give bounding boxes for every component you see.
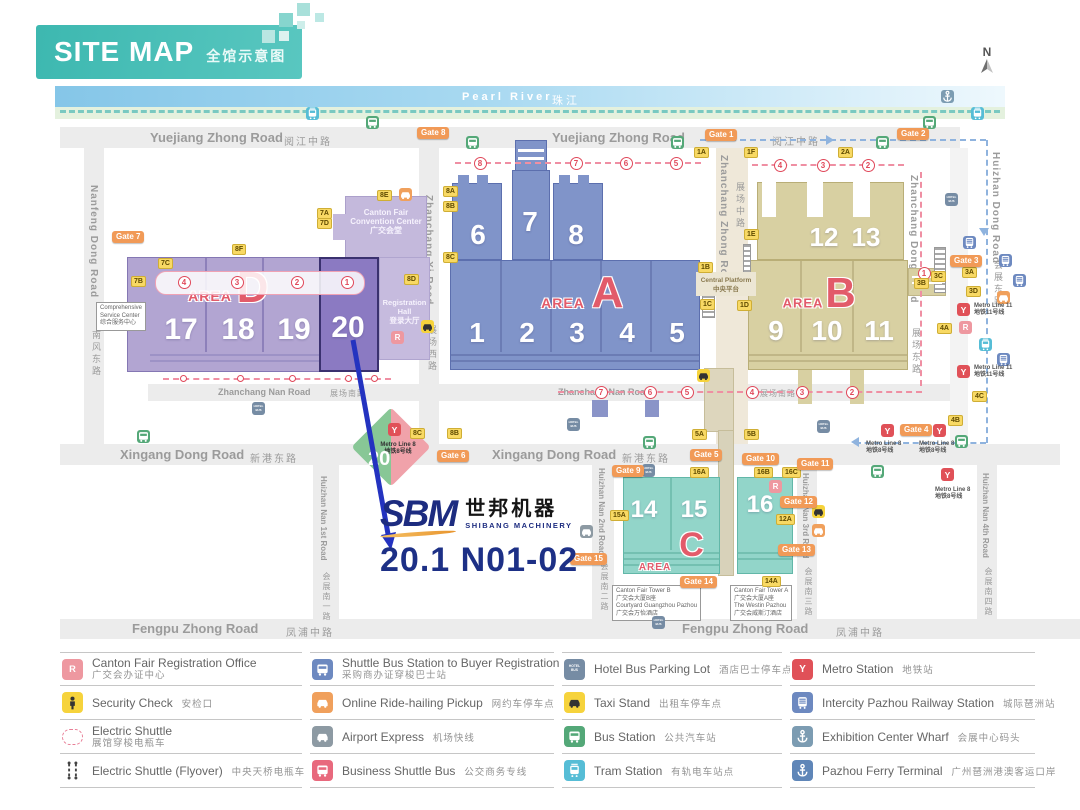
building-block [518,149,544,152]
gate-label: Gate 8 [417,127,449,139]
callout-comprehensive-service-center: ComprehensiveService Center综合服务中心 [96,302,146,331]
area-word: AREA [541,296,585,310]
building-block [559,175,570,184]
area-word: AREA [783,297,824,310]
facility-marker: 8B [447,428,462,439]
legend-label: Business Shuttle Bus 公交商务专线 [342,762,527,780]
area-letter: A [592,271,625,315]
building-block [762,181,776,217]
taxi-icon [564,692,585,713]
metro-icon: Y [792,659,813,680]
building-block [738,558,792,560]
ride-icon [812,524,825,537]
shuttle-stop: 6 [620,157,633,170]
taxi-icon [697,369,710,382]
flyover-icon [62,760,83,781]
metro-line-label: Metro Line 8地铁8号线 [935,487,970,500]
metro-line-label: Metro Line 11地铁11号线 [974,365,1012,378]
legend-label: Metro Station 地铁站 [822,660,934,678]
hall-number: 12 [810,224,839,250]
shuttle-stop: 4 [774,159,787,172]
building-block [645,400,659,417]
metro-icon: Y [957,365,970,378]
gate-label: Gate 3 [950,255,982,267]
hall-number: 5 [669,319,685,347]
legend-label: Exhibition Center Wharf 会展中心码头 [822,728,1021,746]
shuttle-stop: 1 [341,276,354,289]
reg-icon: R [62,659,83,680]
hotel-icon: HOTELBUS [567,418,580,431]
facility-marker: 1E [744,229,759,240]
road-label: 南风东路 [90,330,103,378]
hotel-icon: HOTELBUS [652,616,665,629]
facility-marker: 4B [948,415,963,426]
building-block [749,354,907,356]
building-block [451,360,699,362]
facility-marker: 8D [404,274,419,285]
building-block [578,175,589,184]
hall-number: 14 [631,498,658,522]
hotel-icon: HOTELBUS [252,402,265,415]
building-block [592,400,608,417]
legend-item-tram: Tram Station 有轨电车站点 [562,754,782,788]
legend-item-taxi: Taxi Stand 出租车停车点 [562,686,782,720]
gate-label: Gate 9 [612,465,644,477]
road-label: 新港东路 [250,450,298,465]
metro-line-label: Metro Line 11地铁11号线 [974,303,1012,316]
shuttle-stop: 2 [846,386,859,399]
bizbus-icon [312,760,333,781]
hall-number: 7 [522,208,538,236]
facility-marker: 12A [776,514,795,525]
building-label-central-platform: Central Platform中央平台 [696,276,756,294]
road-label: Fengpu Zhong Road [682,621,808,636]
intercity-icon [792,692,813,713]
bus-icon [366,116,379,129]
building-block [853,181,870,217]
bus-icon [876,136,889,149]
metro-line-label: Metro Line 8地铁8号线 [919,441,954,454]
legend-label: Online Ride-hailing Pickup 网约车停车点 [342,694,555,712]
facility-marker: 3D [966,286,981,297]
tram-icon [306,107,319,120]
hotel-icon: HOTELBUS [945,193,958,206]
building-block [518,157,544,160]
building-block [458,175,469,184]
legend-item-flyover: Electric Shuttle (Flyover) 中央天桥电瓶车 [60,754,302,788]
legend-item-hotel: HOTELBUSHotel Bus Parking Lot 酒店巴士停车点 [562,652,782,686]
facility-marker: 8A [443,186,458,197]
hotel-icon: HOTELBUS [564,659,585,680]
exhibitor-callout: SBM 世邦机器 SHIBANG MACHINERY 20.1 N01-02 [380,498,578,580]
banner-decoration-square [279,31,289,41]
legend-item-airport: Airport Express 机场快线 [310,720,554,754]
legend-item-ferry: Pazhou Ferry Terminal 广州琶洲港澳客运口岸 [790,754,1035,788]
gate-label: Gate 4 [900,424,932,436]
legend-label: Security Check 安检口 [92,694,213,712]
building-block [451,354,699,356]
wharf-icon [941,90,954,103]
facility-marker: 1C [700,299,715,310]
hotel-icon: HOTELBUS [817,420,830,433]
road-label: 展场中路 [734,182,747,230]
bus-icon [466,136,479,149]
building-block [515,140,547,172]
legend-item-bizbus: Business Shuttle Bus 公交商务专线 [310,754,554,788]
road-label: Huizhan Dong Road [990,152,1001,264]
road-label: Huizhan Nan 2nd Road [597,468,606,555]
hall-number: 4 [619,319,635,347]
road-label: 凤浦中路 [286,624,334,639]
tram-icon [971,107,984,120]
sbm-logo: SBM [380,498,456,536]
route-arrowhead [979,228,989,236]
hall-number: 19 [277,315,310,345]
bus-icon [955,435,968,448]
booth-location: 20.1 N01-02 [380,541,578,580]
shuttle-stop: 8 [474,157,487,170]
hall-number: 16 [747,493,774,517]
banner-decoration-square [279,13,293,27]
hall-number: 13 [852,224,881,250]
facility-marker: 7C [158,258,173,269]
facility-marker: 1A [694,147,709,158]
intercity-icon [963,236,976,249]
facility-marker: 2A [838,147,853,158]
hall-number: 11 [864,317,894,345]
building-block [749,360,907,362]
bus-icon [871,465,884,478]
bus-icon [643,436,656,449]
page-title: SITE MAP [54,36,194,68]
legend-item-intercity: Intercity Pazhou Railway Station 城际琶洲站 [790,686,1035,720]
facility-marker: 16A [690,467,709,478]
tram-icon [979,338,992,351]
legend-item-bus: Bus Station 公共汽车站 [562,720,782,754]
shuttle-stop: 4 [178,276,191,289]
road-label: 凤浦中路 [836,624,884,639]
gate-label: Gate 11 [797,458,833,470]
banner-decoration-square [297,21,305,29]
ferry-icon [792,760,813,781]
gate-label: Gate 14 [680,576,717,588]
legend-item-wharf: Exhibition Center Wharf 会展中心码头 [790,720,1035,754]
building-block [670,478,672,550]
area-letter: C [679,528,705,562]
road-label: 会展南四路 [983,567,994,617]
banner-decoration-square [262,30,275,43]
legend-item-metro: YMetro Station 地铁站 [790,652,1035,686]
road-label: 展场南路 [760,388,796,399]
shuttle-stop: 2 [291,276,304,289]
shuttle-stop: 7 [595,386,608,399]
airport-icon [580,525,593,538]
loop-icon [62,726,83,747]
taxi-icon [421,320,434,333]
shuttle-stop: 4 [746,386,759,399]
gate-label: Gate 6 [437,450,469,462]
shuttle-stop: 5 [681,386,694,399]
legend-label: Tram Station 有轨电车站点 [594,762,734,780]
sbm-wordmark: 世邦机器 SHIBANG MACHINERY [465,498,572,530]
shuttle-stop: 6 [644,386,657,399]
metro-icon: Y [881,424,894,437]
gate-label: Gate 2 [897,128,929,140]
gate-label: Gate 13 [778,544,815,556]
road-label: Huizhan Nan 4th Road [981,473,990,558]
facility-marker: 8B [443,201,458,212]
intercity-icon [999,254,1012,267]
pearl-river-label: Pearl River [462,91,552,103]
area-word: AREA [639,563,671,573]
road-label: 阅江中路 [284,133,332,148]
facility-marker: 1D [737,300,752,311]
legend-label: Canton Fair Registration Office广交会办证中心 [92,657,257,681]
road-label: Fengpu Zhong Road [132,621,258,636]
building-block [500,261,502,352]
facility-marker: 14A [762,576,781,587]
page-title-zh: 全馆示意图 [206,46,286,66]
legend-label: Shuttle Bus Station to Buyer Registratio… [342,657,594,681]
shuttle-stop: 7 [570,157,583,170]
road-label: Xingang Dong Road [120,447,244,462]
facility-marker: 7D [317,218,332,229]
ride-icon [399,188,412,201]
road-label: 会展南一路 [321,572,332,622]
banner-decoration-square [315,13,324,22]
hall-number: 2 [519,319,535,347]
hall-number: 6 [470,221,486,249]
road-label: Xingang Dong Road [492,447,616,462]
ride-icon [312,692,333,713]
road-label: Zhanchang Zhong Road [718,155,729,289]
north-arrow-icon [980,58,994,74]
route-arrowhead [851,437,859,447]
shuttle-route [558,391,922,393]
hall-number: 10 [811,317,842,345]
legend-label: Hotel Bus Parking Lot 酒店巴士停车点 [594,660,792,678]
road-label: Yuejiang Zhong Road [150,130,283,145]
metro-icon: Y [933,424,946,437]
hall-number: 15 [681,498,708,522]
tram-icon [564,760,585,781]
metro-icon: Y [941,468,954,481]
shuttlebus-icon [312,659,333,680]
stairs-structure [743,244,751,274]
metro-icon: Y [957,303,970,316]
legend-label: Airport Express 机场快线 [342,728,475,746]
bus-icon [137,430,150,443]
building-block [650,261,652,352]
hall-number: 18 [221,315,254,345]
legend-label: Intercity Pazhou Railway Station 城际琶洲站 [822,694,1056,712]
shuttle-stop: 2 [862,159,875,172]
gate-label: Gate 10 [742,453,779,465]
airport-icon [312,726,333,747]
shuttle-stop: 3 [817,159,830,172]
legend-item-ride: Online Ride-hailing Pickup 网约车停车点 [310,686,554,720]
legend-label: Electric Shuttle展馆穿梭电瓶车 [92,725,172,749]
facility-marker: 3B [914,278,929,289]
road-label: 会展南二路 [599,562,610,612]
building-block [477,175,488,184]
route-arrowhead [826,135,834,145]
facility-marker: 4A [937,323,952,334]
callout-canton-fair-tower-a: Canton Fair Tower A广交会大厦A座The Westin Paz… [730,585,792,621]
facility-marker: 7B [131,276,146,287]
gate-label: Gate 5 [690,449,722,461]
hall-number: 1 [469,319,485,347]
bus-icon [564,726,585,747]
facility-marker: 16B [754,467,773,478]
legend-label: Taxi Stand 出租车停车点 [594,694,722,712]
metro-line-label: Metro Line 8地铁8号线 [866,441,901,454]
facility-marker: 1F [744,147,758,158]
gate-label: Gate 12 [780,496,817,508]
gate-label: Gate 1 [705,129,737,141]
security-icon [62,692,83,713]
banner-decoration-square [297,3,310,16]
hall-number: 17 [164,315,197,345]
shuttle-stop [237,375,244,382]
road-label: Zhanchang Nan Road [218,387,311,397]
legend-label: Pazhou Ferry Terminal 广州琶洲港澳客运口岸 [822,762,1056,780]
hall-number: 9 [768,317,784,345]
gate-label: Gate 7 [112,231,144,243]
road-label: Huizhan Nan 1st Road [319,476,328,560]
road-label: Yuejiang Zhong Road [552,130,685,145]
wharf-icon [792,726,813,747]
bus-icon [671,136,684,149]
building-block [807,181,823,217]
shuttle-stop [180,375,187,382]
legend-item-shuttlebus: Shuttle Bus Station to Buyer Registratio… [310,652,554,686]
shuttle-stop: 5 [670,157,683,170]
road-label: Nanfeng Dong Road [88,185,99,298]
tram-line [60,110,1000,113]
site-map-canvas: SITE MAP 全馆示意图 Pearl River 珠江 N SBM 世邦机器… [0,0,1080,810]
stairs-structure [934,247,946,293]
legend-item-reg: RCanton Fair Registration Office广交会办证中心 [60,652,302,686]
hall-number: 3 [569,319,585,347]
intercity-icon [1013,274,1026,287]
facility-marker: 5A [692,429,707,440]
legend-label: Electric Shuttle (Flyover) 中央天桥电瓶车 [92,762,305,780]
road-label: 新港东路 [622,450,670,465]
facility-marker: 1B [698,262,713,273]
riverside-band [55,107,1005,119]
shuttle-stop [289,375,296,382]
facility-marker: 3A [962,267,977,278]
road-label: 会展南三路 [803,567,814,617]
facility-marker: 15A [610,510,629,521]
hall-number: 8 [568,221,584,249]
legend-item-security: Security Check 安检口 [60,686,302,720]
legend-label: Bus Station 公共汽车站 [594,728,717,746]
facility-marker: 8C [443,252,458,263]
reg-icon: R [769,480,782,493]
shuttle-stop: 3 [796,386,809,399]
vehicle-route [700,139,986,141]
pearl-river-label-zh: 珠江 [552,92,580,108]
facility-marker: 4C [972,391,987,402]
area-letter: B [825,272,856,314]
reg-icon: R [959,321,972,334]
facility-marker: 5B [744,429,759,440]
building-label-convention-center: Canton FairConvention Center广交会堂 [345,208,427,235]
legend-item-loop: Electric Shuttle展馆穿梭电瓶车 [60,720,302,754]
facility-marker: 8E [377,190,392,201]
shuttle-stop: 3 [231,276,244,289]
north-label: N [983,45,992,59]
facility-marker: 8F [232,244,246,255]
facility-marker: 3C [931,271,946,282]
north-compass: N [980,46,994,76]
